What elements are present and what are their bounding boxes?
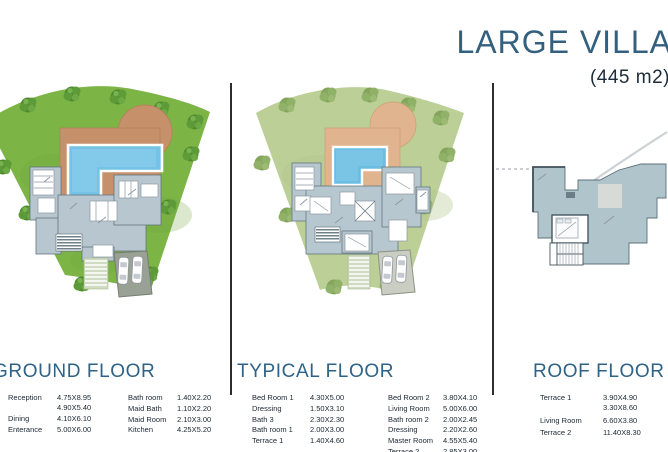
area-label: (445 m2) <box>590 67 668 89</box>
entrance-stairs <box>348 255 370 289</box>
room-dimensions: 5.00X6.00 <box>443 404 477 414</box>
room-name: Living Room <box>388 404 443 414</box>
skylight-patch <box>598 184 622 208</box>
room-dimensions: 4.30X5.00 <box>310 393 344 403</box>
roof-floor-rooms: Terrace 13.90X4.90 3.30X8.60Living Room6… <box>540 393 641 440</box>
room-row: Living Room6.60X3.80 <box>540 416 641 426</box>
room-name: Bath room 2 <box>388 415 443 425</box>
section-divider <box>230 83 232 395</box>
floorplan-sheet: LARGE VILLA (445 m2) <box>0 0 668 452</box>
section-heading-roof: ROOF FLOOR <box>533 361 665 383</box>
room-row: Bed Room 14.30X5.00 <box>252 393 344 403</box>
room-name: Bath 3 <box>252 415 310 425</box>
car-icon <box>382 256 393 283</box>
room-name: Master Room <box>388 436 443 446</box>
room-dimensions: 1.40X4.60 <box>310 436 344 446</box>
room-name: Terrace 2 <box>388 447 443 452</box>
room-dimensions: 1.40X2.20 <box>177 393 211 403</box>
room-row: Dressing2.20X2.60 <box>388 425 477 435</box>
room-name: Terrace 1 <box>540 393 603 414</box>
room-dimensions: 6.60X3.80 <box>603 416 637 426</box>
room-dimensions: 1.50X3.10 <box>310 404 344 414</box>
car-icon <box>132 256 143 283</box>
room-row: Dressing1.50X3.10 <box>252 404 344 414</box>
room-dimensions: 4.55X5.40 <box>443 436 477 446</box>
ground-floor-rooms-left: Reception4.75X8.95 4.90X5.40Dining4.10X6… <box>8 393 91 436</box>
room-name: Bed Room 1 <box>252 393 310 403</box>
room-name: Dining <box>8 414 57 424</box>
page-title: LARGE VILLA <box>456 26 668 58</box>
room-name: Bath room <box>128 393 177 403</box>
room-row: Maid Bath1.10X2.20 <box>128 404 211 414</box>
room-dimensions: 1.10X2.20 <box>177 404 211 414</box>
parking-pad <box>378 250 415 295</box>
room-dimensions: 11.40X8.30 <box>603 428 641 438</box>
room-dimensions: 4.25X5.20 <box>177 425 211 435</box>
pergola-stripes <box>315 227 340 242</box>
room-name: Dressing <box>252 404 310 414</box>
typical-floor-rooms-left: Bed Room 14.30X5.00Dressing1.50X3.10Bath… <box>252 393 344 447</box>
room-row: Dining4.10X6.10 <box>8 414 91 424</box>
pergola-stripes <box>56 234 82 251</box>
room-name: Maid Room <box>128 415 177 425</box>
room-name: Living Room <box>540 416 603 426</box>
car-icon <box>118 257 129 284</box>
room-row: Reception4.75X8.95 4.90X5.40 <box>8 393 91 414</box>
header: LARGE VILLA (445 m2) <box>456 26 668 89</box>
stair-flight <box>550 243 583 265</box>
room-row: Bath room1.40X2.20 <box>128 393 211 403</box>
room-dimensions: 4.75X8.95 4.90X5.40 <box>57 393 91 414</box>
room-name: Maid Bath <box>128 404 177 414</box>
parking-pad <box>114 251 152 297</box>
room-row: Terrace 22.85X3.00 <box>388 447 477 452</box>
section-heading-typical: TYPICAL FLOOR <box>237 361 394 383</box>
room-dimensions: 4.10X6.10 <box>57 414 91 424</box>
car-icon <box>396 255 407 282</box>
roof-living-room <box>552 215 588 243</box>
room-row: Bath room 22.00X2.45 <box>388 415 477 425</box>
room-row: Terrace 11.40X4.60 <box>252 436 344 446</box>
room-row: Living Room5.00X6.00 <box>388 404 477 414</box>
room-name: Reception <box>8 393 57 414</box>
section-heading-ground: GROUND FLOOR <box>0 361 155 383</box>
typical-floor-plan <box>240 55 470 315</box>
ground-floor-rooms-right: Bath room1.40X2.20Maid Bath1.10X2.20Maid… <box>128 393 211 436</box>
typical-floor-rooms-right: Bed Room 23.80X4.10Living Room5.00X6.00B… <box>388 393 477 452</box>
room-name: Bath room 1 <box>252 425 310 435</box>
entrance-stairs <box>84 258 108 289</box>
room-row: Terrace 13.90X4.90 3.30X8.60 <box>540 393 641 414</box>
room-name: Terrace 1 <box>252 436 310 446</box>
room-name: Kitchen <box>128 425 177 435</box>
ground-floor-plan <box>0 55 230 315</box>
room-row: Kitchen4.25X5.20 <box>128 425 211 435</box>
room-dimensions: 2.85X3.00 <box>443 447 477 452</box>
room-dimensions: 2.00X2.45 <box>443 415 477 425</box>
room-dimensions: 2.20X2.60 <box>443 425 477 435</box>
room-row: Bath 32.30X2.30 <box>252 415 344 425</box>
room-dimensions: 2.10X3.00 <box>177 415 211 425</box>
room-row: Bath room 12.00X3.00 <box>252 425 344 435</box>
room-dimensions: 2.30X2.30 <box>310 415 344 425</box>
room-name: Dressing <box>388 425 443 435</box>
room-dimensions: 3.90X4.90 3.30X8.60 <box>603 393 637 414</box>
room-row: Enterance5.00X6.00 <box>8 425 91 435</box>
room-name: Enterance <box>8 425 57 435</box>
room-name: Terrace 2 <box>540 428 603 438</box>
room-row: Master Room4.55X5.40 <box>388 436 477 446</box>
room-dimensions: 2.00X3.00 <box>310 425 344 435</box>
room-row: Maid Room2.10X3.00 <box>128 415 211 425</box>
room-dimensions: 3.80X4.10 <box>443 393 477 403</box>
room-row: Bed Room 23.80X4.10 <box>388 393 477 403</box>
room-row: Terrace 211.40X8.30 <box>540 428 641 438</box>
roof-floor-plan <box>480 120 668 292</box>
roof-hatch <box>566 192 575 198</box>
room-name: Bed Room 2 <box>388 393 443 403</box>
room-dimensions: 5.00X6.00 <box>57 425 91 435</box>
